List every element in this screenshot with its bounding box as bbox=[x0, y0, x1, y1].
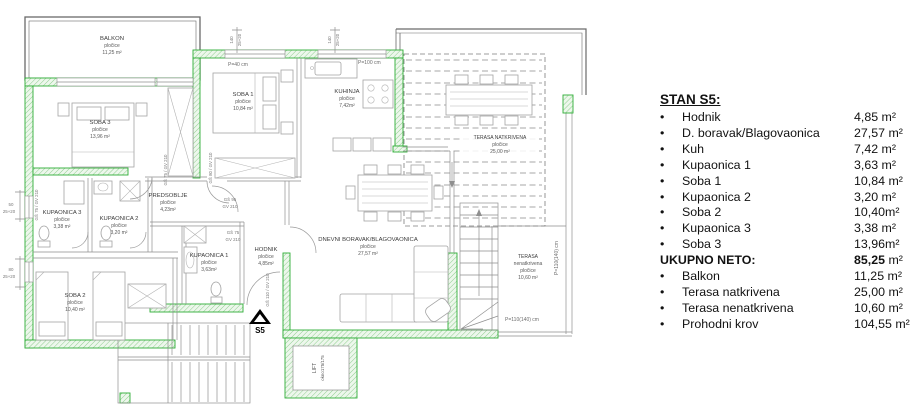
room-area-terasa-nenatkrivena: 10,60 m² bbox=[518, 275, 538, 281]
legend-row: Kupaonica 23,20 m² bbox=[660, 190, 918, 206]
legend-row: Kupaonica 13,63 m² bbox=[660, 158, 918, 174]
legend-row: Kuh7,42 m² bbox=[660, 142, 918, 158]
door-label-left-wall: GŠ 75 / GV 210 bbox=[34, 189, 39, 221]
legend-title: STAN S5: bbox=[660, 92, 918, 107]
room-finish-terasa-nenatkrivena: pločice bbox=[520, 268, 536, 274]
legend-row-value: 10,40m² bbox=[854, 205, 918, 221]
legend-row: Balkon11,25 m² bbox=[660, 269, 918, 285]
legend-row: Soba 210,40m² bbox=[660, 205, 918, 221]
bullet-icon bbox=[660, 110, 682, 126]
sill-p40-label: P=40 cm bbox=[228, 62, 248, 68]
room-label-terasa-natkrivena: TERASA NATKRIVENA bbox=[474, 135, 527, 141]
legend-row-label: Soba 1 bbox=[682, 174, 854, 190]
bullet-icon bbox=[660, 142, 682, 158]
legend-row-value: 10,84 m² bbox=[854, 174, 918, 190]
room-area-soba2: 10,40 m² bbox=[65, 307, 85, 313]
lift-shaft-label: okno175/175 bbox=[320, 355, 325, 381]
sill-p110-label: P=110(140) cm bbox=[505, 317, 539, 323]
sill-p110-vertical-label: P=110(140) cm bbox=[554, 241, 560, 275]
legend-row-value: 3,38 m² bbox=[854, 221, 918, 237]
legend-row: Terasa nenatkrivena10,60 m² bbox=[660, 301, 918, 317]
room-area-predsoblje: 4,23m² bbox=[160, 207, 176, 213]
room-label-dnevni: DNEVNI BORAVAK/BLAGOVAONICA bbox=[318, 237, 418, 243]
bullet-icon bbox=[660, 285, 682, 301]
stairwell-common bbox=[118, 323, 250, 403]
room-finish-predsoblje: pločice bbox=[160, 200, 176, 206]
dim-2520-c: 25+20 bbox=[3, 209, 16, 214]
legend-row: Soba 313,96m² bbox=[660, 237, 918, 253]
room-label-kuhinja: KUHINJA bbox=[334, 89, 359, 95]
room-finish-soba2: pločice bbox=[67, 300, 83, 306]
dim-2520-d: 25+20 bbox=[3, 274, 16, 279]
bullet-icon bbox=[660, 221, 682, 237]
door-label-gs95: GŠ 95 bbox=[224, 197, 237, 202]
room-label-kupaonica2: KUPAONICA 2 bbox=[100, 216, 139, 222]
room-area-balkon: 11,25 m² bbox=[102, 50, 122, 56]
legend-row-label: Soba 3 bbox=[682, 237, 854, 253]
legend-row-value: 3,20 m² bbox=[854, 190, 918, 206]
room-finish-hodnik: pločice bbox=[258, 254, 274, 260]
legend-row-label: D. boravak/Blagovaonica bbox=[682, 126, 854, 142]
room-finish-kuhinja: pločice bbox=[339, 96, 355, 102]
room-label-soba1: SOBA 1 bbox=[233, 92, 254, 98]
entrance-marker-label: S5 bbox=[255, 326, 265, 335]
room-area-kupaonica1: 3,63m² bbox=[201, 267, 217, 273]
legend-row-label: Kupaonica 3 bbox=[682, 221, 854, 237]
legend-row-value: 25,00 m² bbox=[854, 285, 918, 301]
legend-row-label: Prohodni krov bbox=[682, 317, 854, 333]
room-label2-terasa-nenatkrivena: nenatkrivena bbox=[514, 261, 543, 267]
bullet-icon bbox=[660, 174, 682, 190]
dim-50: 50 bbox=[9, 202, 14, 207]
room-area-kuhinja: 7,42m² bbox=[339, 103, 355, 109]
legend-row-label: Kupaonica 1 bbox=[682, 158, 854, 174]
legend-row-value: 11,25 m² bbox=[854, 269, 918, 285]
door-label-kup1-gv: GV 210 bbox=[226, 237, 241, 242]
room-label-terasa-nenatkrivena: TERASA bbox=[518, 254, 539, 260]
room-finish-kupaonica2: pločice bbox=[111, 223, 127, 229]
room-area-terasa-natkrivena: 25,00 m² bbox=[490, 149, 510, 155]
area-summary-panel: STAN S5: Hodnik4,85 m² D. boravak/Blagov… bbox=[660, 92, 918, 333]
legend-row-value: 3,63 m² bbox=[854, 158, 918, 174]
legend-row-value: 7,42 m² bbox=[854, 142, 918, 158]
bullet-icon bbox=[660, 190, 682, 206]
legend-row: Soba 110,84 m² bbox=[660, 174, 918, 190]
dim-80: 80 bbox=[9, 267, 14, 272]
room-label-soba2: SOBA 2 bbox=[65, 293, 86, 299]
legend-row-value: 13,96m² bbox=[854, 237, 918, 253]
room-finish-kupaonica3: pločice bbox=[54, 217, 70, 223]
room-area-soba1: 10,84 m² bbox=[233, 106, 253, 112]
legend-row-label: Kuh bbox=[682, 142, 854, 158]
bullet-icon bbox=[660, 158, 682, 174]
dim-2520-a: 25+20 bbox=[237, 33, 242, 46]
door-label-gs75: GŠ 75 / GV 210 bbox=[163, 154, 168, 186]
legend-row-label: Soba 2 bbox=[682, 205, 854, 221]
room-label-soba3: SOBA 3 bbox=[90, 120, 112, 126]
room-finish-balkon: pločice bbox=[104, 43, 120, 49]
legend-row-label: Balkon bbox=[682, 269, 854, 285]
dim-140-b: 140 bbox=[327, 36, 332, 44]
screenshot-root: S5 BALKON pločice 11,25 m² SOBA 3 pločic… bbox=[0, 0, 920, 406]
door-label-gs95-gv: GV 210 bbox=[223, 204, 238, 209]
door-label-kup1: GŠ 75 bbox=[227, 230, 240, 235]
legend-row-value: 104,55 m² bbox=[854, 317, 918, 333]
room-area-kupaonica3: 3,38 m² bbox=[54, 224, 71, 230]
door-label-entrance: GŠ 110 / GV 210 bbox=[265, 273, 270, 307]
room-label-hodnik: HODNIK bbox=[255, 247, 278, 253]
bullet-icon bbox=[660, 301, 682, 317]
room-area-dnevni: 27,57 m² bbox=[358, 251, 378, 257]
legend-row-label: Kupaonica 2 bbox=[682, 190, 854, 206]
legend-row: D. boravak/Blagovaonica27,57 m² bbox=[660, 126, 918, 142]
room-finish-kupaonica1: pločice bbox=[201, 260, 217, 266]
legend-row: Prohodni krov104,55 m² bbox=[660, 317, 918, 333]
room-label-kupaonica3: KUPAONICA 3 bbox=[43, 210, 83, 216]
legend-row: Kupaonica 33,38 m² bbox=[660, 221, 918, 237]
room-label-predsoblje: PREDSOBLJE bbox=[149, 193, 188, 199]
legend-row-label: Terasa nenatkrivena bbox=[682, 301, 854, 317]
entrance-marker: S5 bbox=[249, 309, 271, 335]
bullet-icon bbox=[660, 205, 682, 221]
legend-total-label: UKUPNO NETO: bbox=[660, 253, 854, 269]
room-label-balkon: BALKON bbox=[100, 36, 124, 42]
legend-row: Terasa natkrivena25,00 m² bbox=[660, 285, 918, 301]
bullet-icon bbox=[660, 237, 682, 253]
legend-row: Hodnik4,85 m² bbox=[660, 110, 918, 126]
legend-row-value: 4,85 m² bbox=[854, 110, 918, 126]
room-finish-terasa-natkrivena: pločice bbox=[492, 142, 508, 148]
floor-plan-svg: S5 BALKON pločice 11,25 m² SOBA 3 pločic… bbox=[0, 0, 660, 406]
bullet-icon bbox=[660, 126, 682, 142]
room-label-kupaonica1: KUPAONICA 1 bbox=[190, 253, 229, 259]
legend-row-value: 27,57 m² bbox=[854, 126, 918, 142]
door-label-gs80: GŠ 80 / GV 210 bbox=[208, 152, 213, 184]
room-finish-soba1: pločice bbox=[235, 99, 251, 105]
legend-row-label: Hodnik bbox=[682, 110, 854, 126]
bullet-icon bbox=[660, 269, 682, 285]
dim-140-a: 140 bbox=[229, 36, 234, 44]
lift-label: LIFT bbox=[312, 363, 318, 373]
legend-row-label: Terasa natkrivena bbox=[682, 285, 854, 301]
room-area-hodnik: 4,85m² bbox=[258, 261, 274, 267]
sill-p100-label: P=100 cm bbox=[358, 60, 381, 66]
room-area-soba3: 13,96 m² bbox=[90, 134, 110, 140]
dim-2520-b: 25+20 bbox=[335, 33, 340, 46]
room-area-kupaonica2: 3,20 m² bbox=[111, 230, 128, 236]
room-finish-dnevni: pločice bbox=[360, 244, 376, 250]
room-finish-soba3: pločice bbox=[92, 127, 108, 133]
legend-row-value: 10,60 m² bbox=[854, 301, 918, 317]
bullet-icon bbox=[660, 317, 682, 333]
legend-total-row: UKUPNO NETO: 85,25 m² bbox=[660, 253, 918, 269]
legend-total-value: 85,25 m² bbox=[854, 253, 918, 269]
